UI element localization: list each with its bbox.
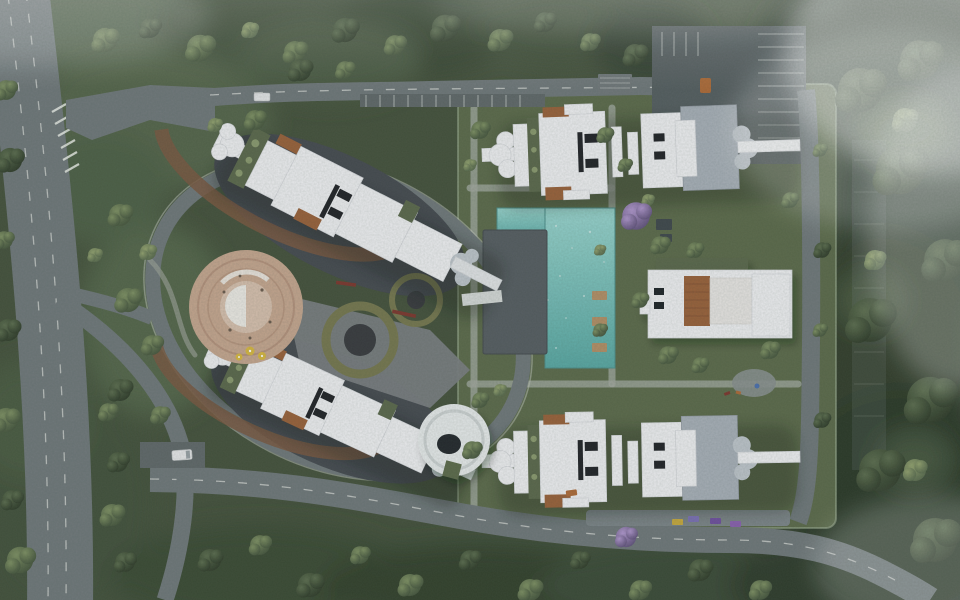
aerial-site-plan: [0, 0, 960, 600]
cool-tint-overlay: [0, 0, 960, 600]
aerial-render-stage: [0, 0, 960, 600]
